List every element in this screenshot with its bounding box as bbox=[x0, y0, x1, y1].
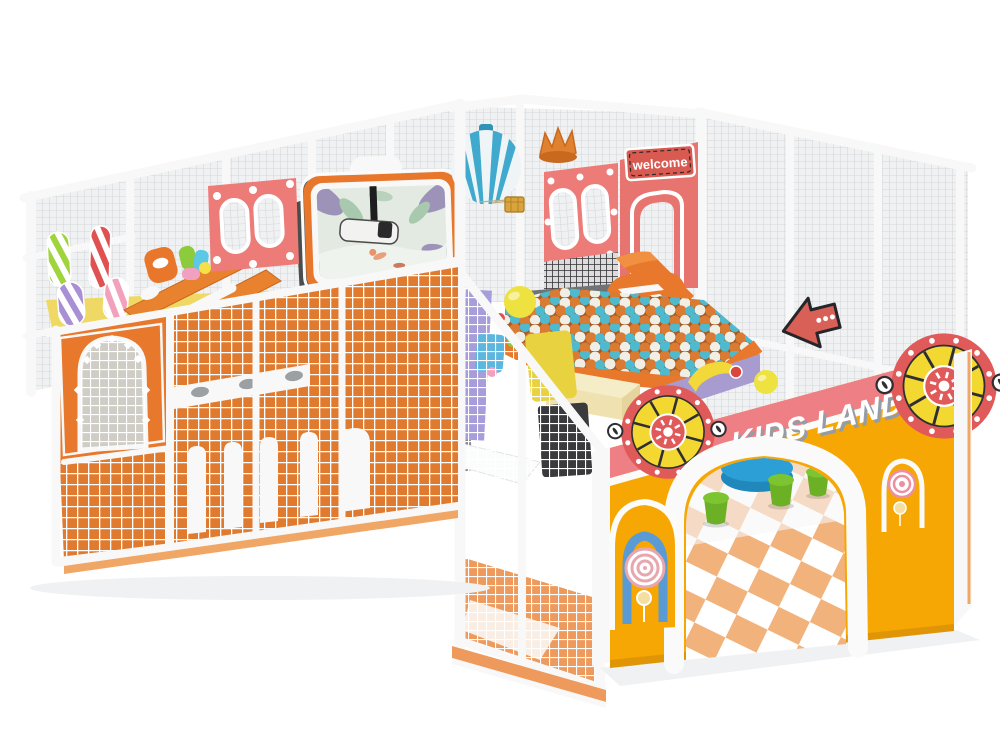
yellow-ball bbox=[754, 370, 778, 394]
yellow-ball bbox=[504, 286, 536, 318]
tower-oval-window bbox=[550, 189, 578, 249]
playground-render: welcome bbox=[0, 0, 1000, 733]
floor-shadow bbox=[30, 576, 490, 600]
kids-stool bbox=[768, 474, 794, 510]
lollipop-arch-right bbox=[884, 461, 922, 532]
lollipop-arch-left bbox=[612, 502, 678, 630]
kids-stool bbox=[703, 492, 729, 528]
balloon-basket bbox=[505, 197, 524, 212]
crown-base bbox=[539, 151, 577, 163]
tower-oval-window bbox=[582, 185, 610, 243]
arch-window-panel bbox=[52, 314, 171, 464]
welcome-sign: welcome bbox=[625, 145, 695, 181]
playground-scene: welcome bbox=[0, 0, 1000, 733]
pink-window-panel bbox=[208, 178, 299, 272]
